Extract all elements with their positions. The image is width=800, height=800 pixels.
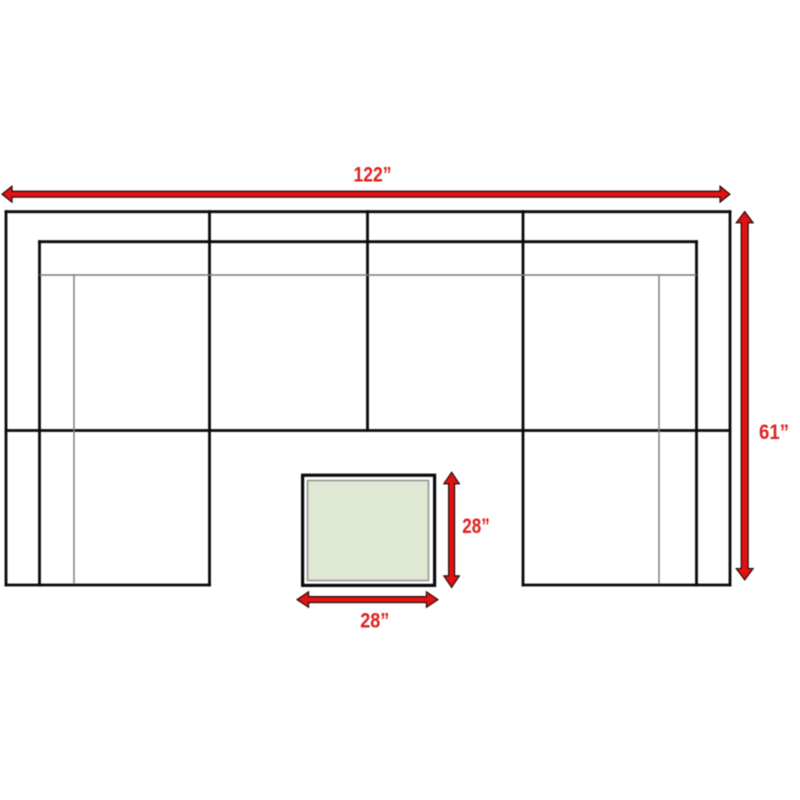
svg-text:122”: 122” bbox=[354, 164, 392, 187]
svg-text:28”: 28” bbox=[360, 609, 389, 632]
svg-text:61”: 61” bbox=[759, 420, 789, 444]
svg-text:28”: 28” bbox=[462, 515, 490, 538]
